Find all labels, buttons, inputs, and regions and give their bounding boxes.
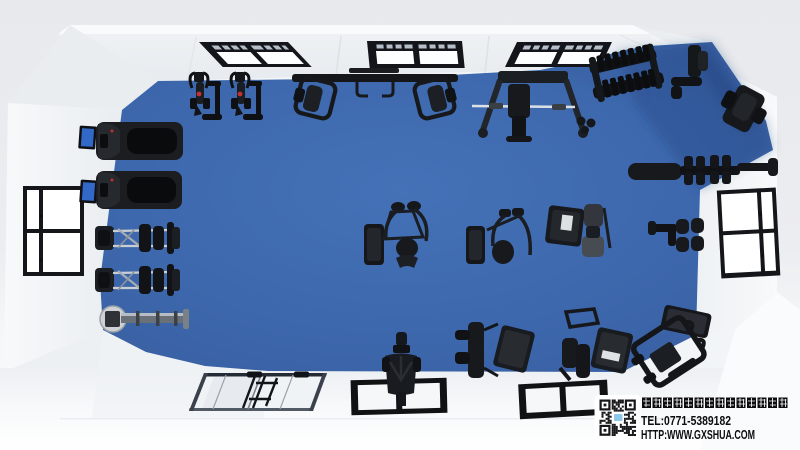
svg-text:TEL:0771-5389182: TEL:0771-5389182 [641, 413, 731, 428]
svg-text:HTTP:WWW.GXSHUA.COM: HTTP:WWW.GXSHUA.COM [641, 428, 755, 442]
